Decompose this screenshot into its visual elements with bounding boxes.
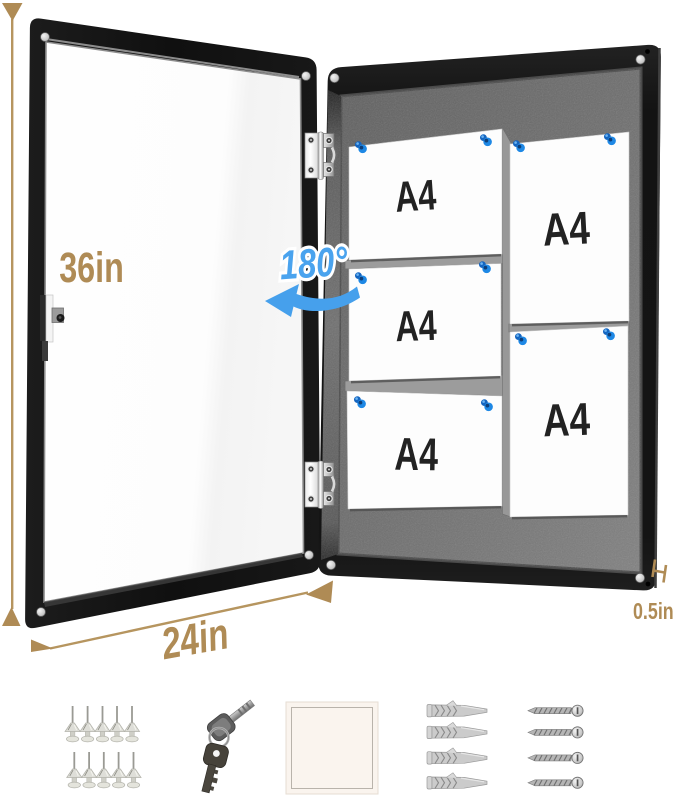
svg-text:A4: A4	[393, 172, 437, 222]
svg-text:A4: A4	[394, 428, 439, 481]
svg-text:36in: 36in	[59, 244, 124, 291]
svg-text:A4: A4	[395, 302, 438, 351]
svg-text:180°: 180°	[278, 237, 350, 288]
svg-text:A4: A4	[541, 201, 591, 255]
svg-text:A4: A4	[542, 393, 591, 447]
svg-text:0.5in: 0.5in	[633, 599, 674, 625]
